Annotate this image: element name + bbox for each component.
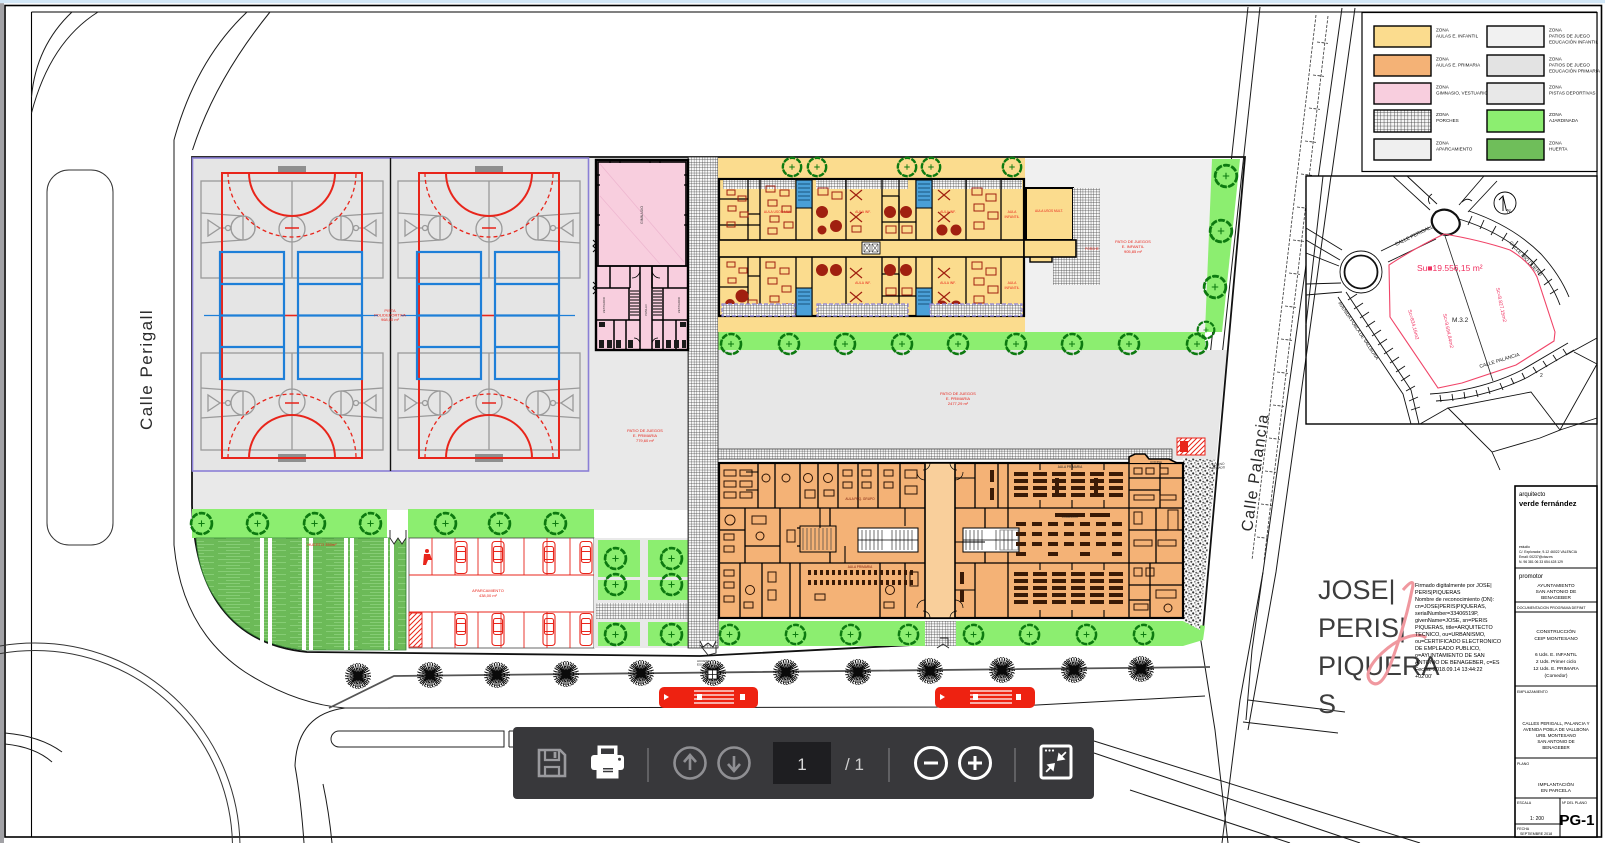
- svg-text:AULA PRIMARIA: AULA PRIMARIA: [1058, 465, 1083, 469]
- svg-text:AULA USOS MULT.: AULA USOS MULT.: [1035, 209, 1063, 213]
- svg-text:FECHA: FECHA: [1517, 827, 1530, 831]
- svg-text:HUERTO 350m²: HUERTO 350m²: [307, 542, 337, 547]
- svg-text:2: 2: [1540, 373, 1543, 379]
- svg-text:438,00 m²: 438,00 m²: [479, 593, 498, 598]
- svg-text:estudio: estudio: [1519, 545, 1530, 549]
- svg-text:968,00 m²: 968,00 m²: [381, 317, 400, 322]
- svg-text:HUERTA: HUERTA: [1549, 147, 1568, 152]
- svg-text:COMEDOR: COMEDOR: [1062, 515, 1079, 519]
- svg-text:Fecha: 2018.09.14 13:44:22: Fecha: 2018.09.14 13:44:22: [1415, 667, 1482, 673]
- svg-text:C/. Explorador, 9-12 46022 VAL: C/. Explorador, 9-12 46022 VALENCIA: [1519, 550, 1578, 554]
- svg-text:AULA: AULA: [1008, 281, 1018, 285]
- svg-text:AVENIDA POBLA DE VALLBONA: AVENIDA POBLA DE VALLBONA: [1523, 727, 1589, 732]
- svg-text:BENAGEBER: BENAGEBER: [1542, 745, 1569, 750]
- svg-text:Email: 00237@ctav.es: Email: 00237@ctav.es: [1519, 555, 1553, 559]
- svg-text:AULA: AULA: [1008, 210, 1018, 214]
- svg-text:VESTUARIO: VESTUARIO: [677, 296, 681, 313]
- svg-text:ZONA: ZONA: [1436, 85, 1450, 90]
- svg-text:ZONA: ZONA: [1549, 57, 1563, 62]
- svg-text:EDUCACIÓN INFANTIL: EDUCACIÓN INFANTIL: [1549, 39, 1598, 45]
- svg-text:VESTUARIO: VESTUARIO: [602, 296, 606, 313]
- svg-text:+02'00': +02'00': [1415, 674, 1432, 680]
- svg-text:APARCAMIENTO: APARCAMIENTO: [1436, 147, 1473, 152]
- svg-text:PORCHES: PORCHES: [1436, 118, 1459, 123]
- svg-text:INFANTIL: INFANTIL: [1005, 215, 1020, 219]
- svg-text:DE EMPLEADO PUBLICO,: DE EMPLEADO PUBLICO,: [1415, 646, 1481, 652]
- svg-text:PATIOS DE JUEGO: PATIOS DE JUEGO: [1549, 34, 1590, 39]
- svg-text:AJARDINADA: AJARDINADA: [1549, 118, 1579, 123]
- svg-text:CONSTRUCCIÓN: CONSTRUCCIÓN: [1536, 628, 1576, 635]
- svg-text:PERIS|: PERIS|: [1318, 613, 1406, 643]
- svg-text:PORCHE: PORCHE: [1085, 247, 1099, 251]
- svg-text:AULA INF.: AULA INF.: [855, 281, 871, 285]
- svg-text:779,60 m²: 779,60 m²: [636, 438, 655, 443]
- svg-text:AULA INF.: AULA INF.: [940, 210, 956, 214]
- svg-text:CEIP MONTESANO: CEIP MONTESANO: [1534, 636, 1578, 642]
- svg-text:GIMNASIO: GIMNASIO: [640, 206, 644, 224]
- svg-text:ESCALA: ESCALA: [1517, 801, 1532, 805]
- svg-text:1: 1: [797, 755, 806, 774]
- svg-text:verde fernández: verde fernández: [1519, 499, 1577, 508]
- svg-text:ZONA: ZONA: [1436, 141, 1450, 146]
- svg-text:1: 200: 1: 200: [1530, 816, 1544, 822]
- svg-text:AULA USOS MUL.: AULA USOS MUL.: [764, 210, 792, 214]
- svg-text:arquitecto: arquitecto: [1519, 492, 1546, 498]
- svg-text:SEPTIEMBRE 2018: SEPTIEMBRE 2018: [1520, 832, 1552, 836]
- svg-text:GIMNASIO, VESTUARIOS: GIMNASIO, VESTUARIOS: [1436, 91, 1491, 96]
- svg-text:AULA PEQ. GRUPO: AULA PEQ. GRUPO: [845, 497, 875, 501]
- svg-text:TECNICO, ou=URBANISMO,: TECNICO, ou=URBANISMO,: [1415, 632, 1486, 638]
- svg-text:Calle Perigall: Calle Perigall: [137, 309, 156, 430]
- svg-text:AULAS E. PRIMARIA: AULAS E. PRIMARIA: [1436, 63, 1481, 68]
- svg-text:DOCUMENTACION PROGRAMA DEFINIT: DOCUMENTACION PROGRAMA DEFINIT: [1517, 606, 1586, 610]
- svg-text:AYUNTAMIENTO: AYUNTAMIENTO: [1537, 583, 1575, 589]
- svg-text:IMPLANTACIÓN: IMPLANTACIÓN: [1538, 781, 1574, 788]
- svg-text:INFANTIL: INFANTIL: [1005, 286, 1020, 290]
- svg-text:ZONA: ZONA: [1549, 112, 1563, 117]
- svg-text:ANTONIO DE BENAGEBER, c=ES: ANTONIO DE BENAGEBER, c=ES: [1415, 660, 1500, 666]
- svg-text:PIQUERAS, title=ARQUITECTO: PIQUERAS, title=ARQUITECTO: [1415, 625, 1493, 631]
- svg-text:/ 1: / 1: [845, 755, 864, 774]
- svg-text:cn=JOSE|PERIS|PIQUERAS,: cn=JOSE|PERIS|PIQUERAS,: [1415, 604, 1487, 610]
- svg-text:JOSE|: JOSE|: [1318, 575, 1396, 605]
- svg-text:PG-1: PG-1: [1559, 812, 1594, 829]
- svg-text:CALLES PERIGALL, PALANCIA Y: CALLES PERIGALL, PALANCIA Y: [1522, 721, 1589, 726]
- svg-text:Firmado digitalmente por JOSE|: Firmado digitalmente por JOSE|: [1415, 583, 1492, 589]
- svg-text:ou=CERTIFICADO ELECTRONICO: ou=CERTIFICADO ELECTRONICO: [1415, 639, 1501, 645]
- svg-text:M.3.2: M.3.2: [1452, 317, 1469, 324]
- svg-text:givenName=JOSE, sn=PERIS: givenName=JOSE, sn=PERIS: [1415, 618, 1488, 624]
- svg-text:N.: N.: [1507, 209, 1512, 215]
- svg-text:6 Uds. E. INFANTIL: 6 Uds. E. INFANTIL: [1535, 652, 1577, 658]
- svg-text:PASILLO: PASILLO: [644, 303, 648, 315]
- svg-text:BENAGEBER: BENAGEBER: [1541, 595, 1571, 601]
- svg-text:ZONA: ZONA: [1549, 28, 1563, 33]
- svg-text:COCINA: COCINA: [1150, 460, 1162, 464]
- svg-text:S: S: [1318, 689, 1336, 719]
- svg-text:(Comedor): (Comedor): [1545, 673, 1568, 679]
- svg-text:PERIS|PIQUERAS: PERIS|PIQUERAS: [1415, 590, 1461, 596]
- svg-text:URB. MONTESANO: URB. MONTESANO: [1536, 733, 1577, 738]
- svg-text:AULA INF.: AULA INF.: [940, 281, 956, 285]
- svg-text:SAN ANTONIO DE: SAN ANTONIO DE: [1536, 589, 1577, 595]
- svg-text:AULA PRIMARIA: AULA PRIMARIA: [848, 565, 873, 569]
- svg-text:Nº DEL PLANO: Nº DEL PLANO: [1562, 801, 1587, 805]
- svg-text:o=AYUNTAMIENTO DE SAN: o=AYUNTAMIENTO DE SAN: [1415, 653, 1485, 659]
- svg-text:PLANO: PLANO: [1517, 762, 1529, 766]
- svg-text:PISTAS DEPORTIVAS: PISTAS DEPORTIVAS: [1549, 91, 1595, 96]
- svg-text:EMPLAZAMIENTO: EMPLAZAMIENTO: [1517, 690, 1548, 694]
- svg-text:Nombre de reconocimiento (DN):: Nombre de reconocimiento (DN):: [1415, 597, 1494, 603]
- svg-text:SAN ANTONIO DE: SAN ANTONIO DE: [1537, 739, 1574, 744]
- svg-text:12 Uds. E. PRIMARA: 12 Uds. E. PRIMARA: [1533, 666, 1579, 672]
- svg-text:AULAS E. INFANTIL: AULAS E. INFANTIL: [1436, 34, 1479, 39]
- svg-text:ZONA: ZONA: [1436, 57, 1450, 62]
- svg-text:AULA INF.: AULA INF.: [855, 210, 871, 214]
- svg-text:ESCOLAR: ESCOLAR: [697, 663, 712, 667]
- svg-text:Su■19.556,15 m²: Su■19.556,15 m²: [1417, 263, 1483, 273]
- svg-text:promotor: promotor: [1519, 574, 1543, 580]
- svg-text:EN PARCELA: EN PARCELA: [1541, 788, 1572, 794]
- svg-text:ZONA: ZONA: [1436, 112, 1450, 117]
- svg-text:ZONA: ZONA: [1549, 141, 1563, 146]
- svg-text:EDUCACIÓN PRIMARIA: EDUCACIÓN PRIMARIA: [1549, 68, 1601, 74]
- svg-text:ZONA: ZONA: [1436, 28, 1450, 33]
- svg-text:905,85 m²: 905,85 m²: [1124, 249, 1143, 254]
- svg-text:2 Uds. Primer ciclo: 2 Uds. Primer ciclo: [1536, 659, 1577, 665]
- svg-text:2477,29 m²: 2477,29 m²: [948, 401, 969, 406]
- svg-text:N. 96 381 06 33 654 428 1: N. 96 381 06 33 654 428 129: [1519, 560, 1563, 564]
- svg-text:PATIOS DE JUEGO: PATIOS DE JUEGO: [1549, 63, 1590, 68]
- svg-text:serialNumber=33406519P,: serialNumber=33406519P,: [1415, 611, 1479, 617]
- svg-text:ZONA: ZONA: [1549, 85, 1563, 90]
